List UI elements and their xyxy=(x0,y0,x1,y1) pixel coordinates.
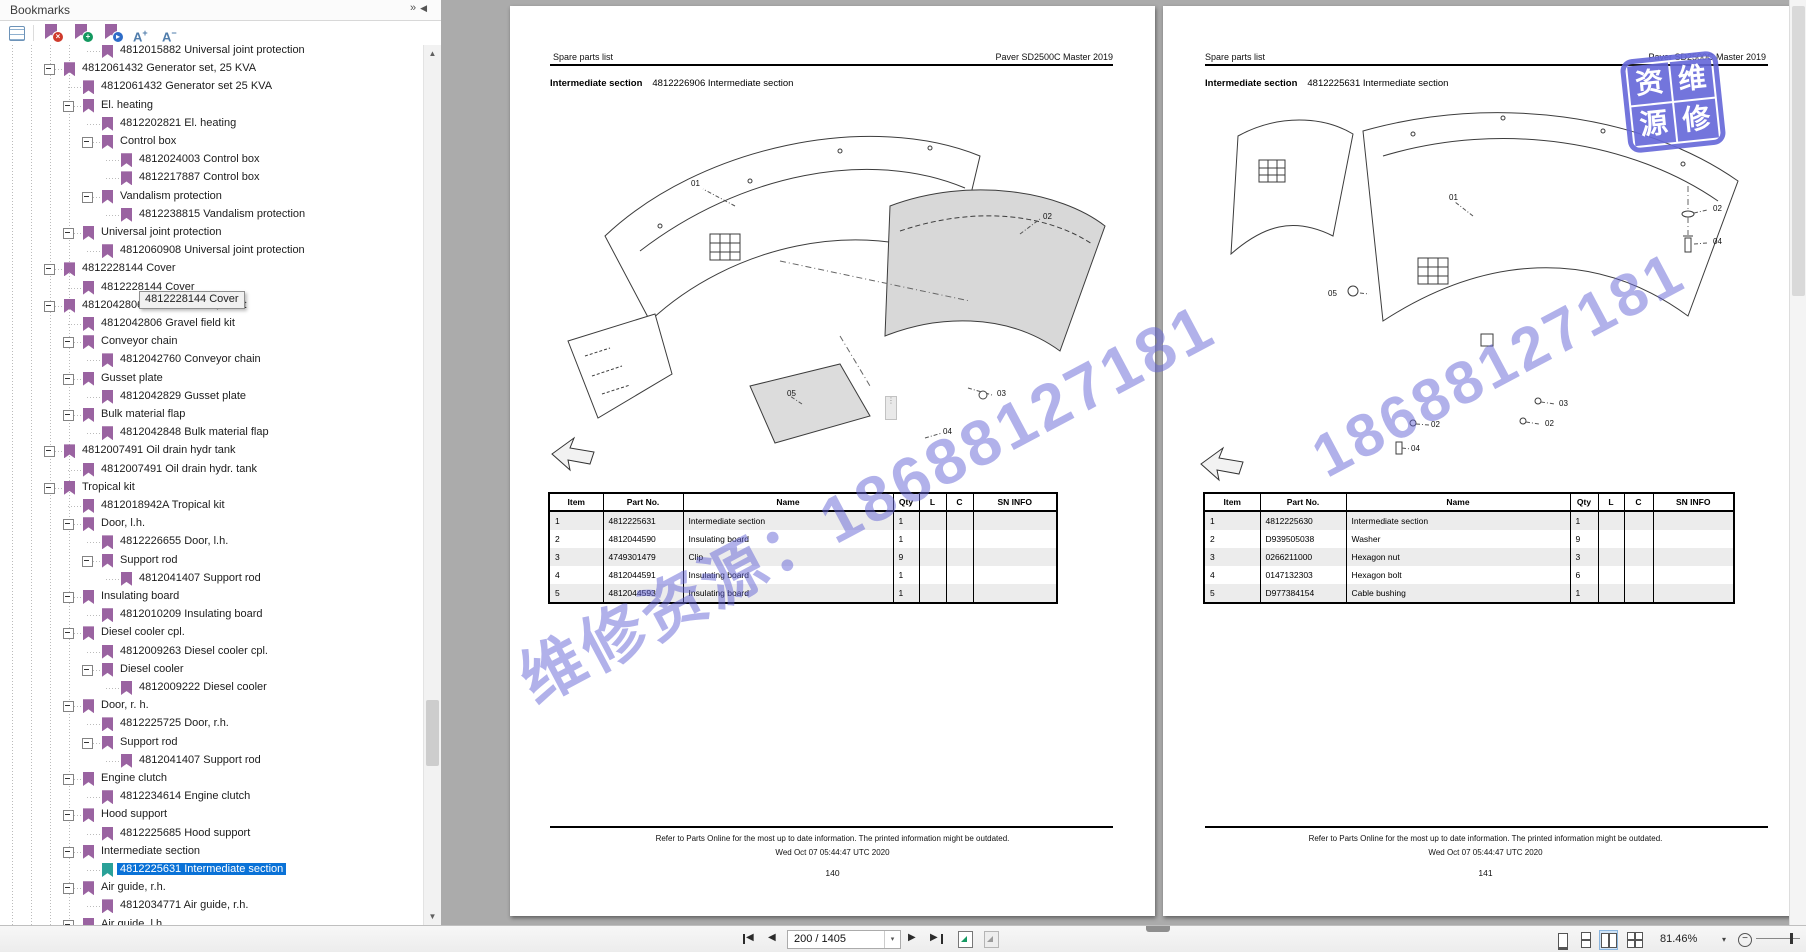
bookmark-item[interactable]: Tropical kit xyxy=(0,479,422,497)
callout-label: 01 xyxy=(691,179,700,188)
continuous-facing-icon[interactable] xyxy=(1625,930,1644,950)
bookmark-icon xyxy=(102,117,113,131)
collapse-expander-icon[interactable] xyxy=(63,847,74,858)
bookmark-item[interactable]: Support rod xyxy=(0,734,422,752)
bookmark-item[interactable]: Intermediate section xyxy=(0,843,422,861)
bookmark-label[interactable]: 4812238815 Vandalism protection xyxy=(136,208,308,220)
collapse-expander-icon[interactable] xyxy=(63,592,74,603)
bookmark-item[interactable]: 4812228144 Cover xyxy=(0,260,422,278)
callout-label: 02 xyxy=(1043,212,1052,221)
bookmark-item[interactable]: 4812202821 El. heating xyxy=(0,115,422,133)
bookmark-icon xyxy=(102,663,113,677)
bookmark-icon xyxy=(102,863,113,877)
bookmark-item[interactable]: 4812009222 Diesel cooler xyxy=(0,679,422,697)
bookmark-icon xyxy=(102,135,113,149)
bookmark-item[interactable]: Insulating board xyxy=(0,588,422,606)
bookmark-label[interactable]: 4812010209 Insulating board xyxy=(117,608,266,620)
col-header: L xyxy=(1598,493,1624,511)
footer-timestamp: Wed Oct 07 05:44:47 UTC 2020 xyxy=(510,848,1155,857)
bookmark-item[interactable]: 4812234614 Engine clutch xyxy=(0,788,422,806)
bookmark-item[interactable]: 4812018942A Tropical kit xyxy=(0,497,422,515)
bookmark-item[interactable]: Air guide, l.h xyxy=(0,916,422,925)
zoom-slider-thumb[interactable] xyxy=(1790,933,1793,944)
table-row: 2D939505038Washer9 xyxy=(1204,530,1734,548)
bookmark-label[interactable]: 4812217887 Control box xyxy=(136,171,262,183)
table-row: 24812044590Insulating board1 xyxy=(549,530,1057,548)
bookmark-label[interactable]: 4812041407 Support rod xyxy=(136,572,264,584)
bookmark-label[interactable]: 4812225631 Intermediate section xyxy=(117,863,286,875)
bookmark-item[interactable]: 4812225685 Hood support xyxy=(0,825,422,843)
tree-connector xyxy=(87,870,100,871)
zoom-slider-track[interactable] xyxy=(1756,938,1800,939)
open-new-window-icon[interactable] xyxy=(984,931,999,948)
bookmark-icon xyxy=(102,645,113,659)
bookmark-label[interactable]: Support rod xyxy=(117,554,180,566)
bookmark-item[interactable]: Door, r. h. xyxy=(0,697,422,715)
collapse-expander-icon[interactable] xyxy=(63,883,74,894)
col-header: Qty xyxy=(1570,493,1598,511)
bookmark-icon xyxy=(83,463,94,477)
tree-connector xyxy=(87,360,100,361)
previous-page-icon[interactable]: ◀ xyxy=(768,932,776,943)
callout-label: 04 xyxy=(943,427,952,436)
bookmark-item[interactable]: Air guide, r.h. xyxy=(0,879,422,897)
tree-connector xyxy=(68,324,81,325)
bookmark-item[interactable]: 4812061432 Generator set 25 KVA xyxy=(0,78,422,96)
collapse-expander-icon[interactable] xyxy=(63,774,74,785)
collapse-expander-icon[interactable] xyxy=(63,228,74,239)
bookmark-item[interactable]: 4812226655 Door, l.h. xyxy=(0,533,422,551)
collapse-expander-icon[interactable] xyxy=(44,264,55,275)
bookmark-item[interactable]: 4812041407 Support rod xyxy=(0,570,422,588)
tree-connector xyxy=(68,470,81,471)
bookmark-label[interactable]: Gusset plate xyxy=(98,372,166,384)
collapse-expander-icon[interactable] xyxy=(44,446,55,457)
bookmark-icon xyxy=(83,335,94,349)
tree-connector xyxy=(87,251,100,252)
bookmark-label[interactable]: 4812009222 Diesel cooler xyxy=(136,681,270,693)
bookmark-item[interactable]: 4812007491 Oil drain hydr tank xyxy=(0,442,422,460)
bookmark-label[interactable]: 4812042848 Bulk material flap xyxy=(117,426,272,438)
bookmark-icon xyxy=(102,717,113,731)
col-header: SN INFO xyxy=(1653,493,1734,511)
bookmark-icon xyxy=(121,681,132,695)
collapse-expander-icon[interactable] xyxy=(82,137,93,148)
tree-connector xyxy=(87,124,100,125)
bookmark-icon xyxy=(83,881,94,895)
tree-connector xyxy=(68,87,81,88)
tree-connector xyxy=(106,761,119,762)
bookmark-item[interactable]: Vandalism protection xyxy=(0,188,422,206)
bookmark-icon xyxy=(102,827,113,841)
bookmark-item[interactable]: 4812034771 Air guide, r.h. xyxy=(0,897,422,915)
bookmark-item[interactable]: 4812042806 Gravel field kit xyxy=(0,315,422,333)
col-header: Item xyxy=(1204,493,1260,511)
bookmark-icon xyxy=(102,608,113,622)
bookmark-label[interactable]: 4812024003 Control box xyxy=(136,153,262,165)
callout-label: 04 xyxy=(1713,237,1722,246)
exploded-view-diagram xyxy=(1183,86,1803,486)
bookmark-icon xyxy=(83,772,94,786)
bookmark-item[interactable]: 4812217887 Control box xyxy=(0,169,422,187)
bookmark-label[interactable]: 4812061432 Generator set 25 KVA xyxy=(98,80,275,92)
callout-label: 03 xyxy=(1559,399,1568,408)
tree-connector xyxy=(106,178,119,179)
bookmark-label[interactable]: Air guide, r.h. xyxy=(98,881,169,893)
bookmark-item[interactable]: 4812009263 Diesel cooler cpl. xyxy=(0,643,422,661)
bookmark-icon xyxy=(102,899,113,913)
bookmark-label[interactable]: Diesel cooler cpl. xyxy=(98,626,188,638)
collapse-expander-icon[interactable] xyxy=(82,665,93,676)
bookmark-item[interactable]: Conveyor chain xyxy=(0,333,422,351)
bookmark-item[interactable]: 4812225631 Intermediate section xyxy=(0,861,422,879)
bookmark-icon xyxy=(83,626,94,640)
zoom-out-icon[interactable]: − xyxy=(1738,933,1752,947)
bookmark-icon xyxy=(83,99,94,113)
bookmark-icon xyxy=(83,317,94,331)
collapse-expander-icon[interactable] xyxy=(63,374,74,385)
collapse-expander-icon[interactable] xyxy=(63,701,74,712)
bookmark-label[interactable]: 4812007491 Oil drain hydr. tank xyxy=(98,463,260,475)
pdf-reader-window: 4812015882 Universal joint protection481… xyxy=(0,0,1806,952)
bookmark-icon xyxy=(102,44,113,58)
col-header: Qty xyxy=(893,493,919,511)
collapse-expander-icon[interactable] xyxy=(44,483,55,494)
callout-label: 02 xyxy=(1431,420,1440,429)
bottom-toolbar: ◀ ◀ 200 / 1405 ▾ ▶ ▶ 81.46% ▾ − xyxy=(0,925,1806,952)
bookmark-item[interactable]: 4812041407 Support rod xyxy=(0,752,422,770)
font-decrease-icon[interactable]: A− xyxy=(162,24,184,42)
tree-connector xyxy=(87,433,100,434)
bookmark-icon xyxy=(83,226,94,240)
panel-splitter-grip[interactable]: ⋮ xyxy=(885,396,897,420)
callout-label: 02 xyxy=(1713,204,1722,213)
next-page-icon[interactable]: ▶ xyxy=(908,932,916,943)
bookmark-icon xyxy=(83,517,94,531)
bookmark-icon xyxy=(102,353,113,367)
col-header: C xyxy=(946,493,973,511)
continuous-page-icon[interactable] xyxy=(1576,930,1595,950)
orientation-arrow-icon xyxy=(552,438,594,470)
page-number: 141 xyxy=(1163,868,1806,878)
bookmark-label[interactable]: 4812061432 Generator set, 25 KVA xyxy=(79,62,259,74)
bookmark-icon xyxy=(83,918,94,925)
col-header: SN INFO xyxy=(973,493,1057,511)
footer-rule xyxy=(1205,826,1768,828)
col-header: Item xyxy=(549,493,603,511)
delete-bookmark-icon[interactable]: × xyxy=(45,24,63,42)
bookmark-item[interactable]: 4812238815 Vandalism protection xyxy=(0,206,422,224)
bookmark-icon xyxy=(83,590,94,604)
bookmark-item[interactable]: Diesel cooler cpl. xyxy=(0,624,422,642)
bookmark-item[interactable]: 4812010209 Insulating board xyxy=(0,606,422,624)
collapse-expander-icon[interactable] xyxy=(82,556,93,567)
bookmark-icon xyxy=(102,535,113,549)
bookmark-label[interactable]: Air guide, l.h xyxy=(98,918,165,925)
callout-label: 03 xyxy=(997,389,1006,398)
bookmark-label[interactable]: 4812042806 Gravel field kit xyxy=(98,317,238,329)
bookmark-label[interactable]: 4812202821 El. heating xyxy=(117,117,239,129)
col-header: C xyxy=(1624,493,1653,511)
bookmark-icon xyxy=(83,281,94,295)
table-row: 5D977384154Cable bushing1 xyxy=(1204,584,1734,603)
bookmark-label[interactable]: El. heating xyxy=(98,99,156,111)
tree-connector xyxy=(106,215,119,216)
bookmark-label[interactable]: 4812042829 Gusset plate xyxy=(117,390,249,402)
locate-bookmark-icon[interactable]: ▸ xyxy=(105,24,123,42)
bookmark-label[interactable]: 4812060908 Universal joint protection xyxy=(117,244,308,256)
page-number-input[interactable]: 200 / 1405 ▾ xyxy=(787,930,901,949)
bookmark-icon xyxy=(83,699,94,713)
table-row: 14812225630Intermediate section1 xyxy=(1204,511,1734,530)
bookmark-icon xyxy=(83,80,94,94)
bookmark-label[interactable]: 4812007491 Oil drain hydr tank xyxy=(79,444,239,456)
tree-connector xyxy=(87,834,100,835)
orientation-arrow-icon xyxy=(1201,448,1243,480)
bookmark-item[interactable]: 4812024003 Control box xyxy=(0,151,422,169)
table-row: 34749301479Clip9 xyxy=(549,548,1057,566)
tree-connector xyxy=(87,652,100,653)
bookmark-label[interactable]: Support rod xyxy=(117,736,180,748)
bookmarks-panel: 4812015882 Universal joint protection481… xyxy=(0,0,441,925)
bookmark-label[interactable]: Bulk material flap xyxy=(98,408,188,420)
tree-connector xyxy=(87,906,100,907)
exploded-view-diagram xyxy=(540,86,1140,486)
bookmark-item[interactable]: Hood support xyxy=(0,806,422,824)
watermark-stamp: 资维 源修 xyxy=(1619,50,1726,154)
page-header-left: Spare parts list xyxy=(553,52,613,62)
pdf-page-140: Spare parts list Paver SD2500C Master 20… xyxy=(510,6,1155,916)
bookmark-label[interactable]: Tropical kit xyxy=(79,481,138,493)
collapse-expander-icon[interactable] xyxy=(63,337,74,348)
toolbar-divider xyxy=(33,25,34,41)
facing-pages-icon[interactable] xyxy=(1599,930,1618,950)
first-page-icon[interactable]: ◀ xyxy=(746,932,754,943)
callout-label: 04 xyxy=(1411,444,1420,453)
bookmark-label[interactable]: Hood support xyxy=(98,808,170,820)
bookmark-icon xyxy=(121,572,132,586)
bookmark-label[interactable]: 4812015882 Universal joint protection xyxy=(117,44,308,56)
first-page-bar xyxy=(743,934,745,944)
bookmark-item[interactable]: 4812007491 Oil drain hydr. tank xyxy=(0,461,422,479)
tree-connector xyxy=(87,397,100,398)
parts-table: Item Part No. Name Qty L C SN INFO 14812… xyxy=(1203,492,1735,604)
page-number: 140 xyxy=(510,868,1155,878)
font-increase-icon[interactable]: A+ xyxy=(133,24,155,42)
collapse-expander-icon[interactable] xyxy=(63,519,74,530)
bookmark-item[interactable]: 4812042760 Conveyor chain xyxy=(0,351,422,369)
tree-connector xyxy=(87,724,100,725)
bookmark-icon xyxy=(64,481,75,495)
scrollbar-thumb[interactable] xyxy=(426,700,439,766)
col-header: Part No. xyxy=(603,493,683,511)
bookmark-item[interactable]: Bulk material flap xyxy=(0,406,422,424)
parts-table: Item Part No. Name Qty L C SN INFO 14812… xyxy=(548,492,1058,604)
table-row: 54812044593Insulating board1 xyxy=(549,584,1057,603)
page-dropdown-icon[interactable]: ▾ xyxy=(884,931,900,948)
bookmark-label[interactable]: 4812018942A Tropical kit xyxy=(98,499,228,511)
col-header: Part No. xyxy=(1260,493,1346,511)
scroll-down-icon[interactable]: ▼ xyxy=(424,908,441,925)
bookmark-item[interactable]: Support rod xyxy=(0,552,422,570)
last-page-icon[interactable]: ▶ xyxy=(930,932,938,943)
bookmark-icon xyxy=(64,444,75,458)
collapse-expander-icon[interactable] xyxy=(82,192,93,203)
bookmark-icon xyxy=(83,845,94,859)
bookmark-label[interactable]: Control box xyxy=(117,135,179,147)
bookmark-icon xyxy=(121,171,132,185)
col-header: Name xyxy=(1346,493,1570,511)
tree-connector xyxy=(106,579,119,580)
bookmark-icon xyxy=(121,153,132,167)
bookmark-icon xyxy=(102,390,113,404)
bookmark-item[interactable]: Door, l.h. xyxy=(0,515,422,533)
bookmark-label[interactable]: 4812034771 Air guide, r.h. xyxy=(117,899,251,911)
tree-connector xyxy=(106,160,119,161)
bookmarks-toolbar: × + ▸ A+ A− xyxy=(0,21,422,45)
bookmark-label[interactable]: 4812228144 Cover xyxy=(79,262,179,274)
col-header: Name xyxy=(683,493,893,511)
bookmark-item[interactable]: 4812060908 Universal joint protection xyxy=(0,242,422,260)
page-header-right: Paver SD2500C Master 2019 xyxy=(995,52,1113,62)
bookmark-label[interactable]: Door, l.h. xyxy=(98,517,148,529)
bookmark-label[interactable]: 4812042760 Conveyor chain xyxy=(117,353,264,365)
callout-label: 02 xyxy=(1545,419,1554,428)
single-page-icon[interactable] xyxy=(1553,930,1572,950)
bookmark-icon xyxy=(83,808,94,822)
bookmarks-scrollbar[interactable]: ▲ ▼ xyxy=(423,45,441,925)
footer-timestamp: Wed Oct 07 05:44:47 UTC 2020 xyxy=(1163,848,1806,857)
bookmark-icon xyxy=(102,244,113,258)
table-row: 44812044591Insulating board1 xyxy=(549,566,1057,584)
tree-connector xyxy=(87,51,100,52)
bookmark-label[interactable]: 4812009263 Diesel cooler cpl. xyxy=(117,645,271,657)
options-icon[interactable] xyxy=(8,24,26,42)
bookmark-label[interactable]: 4812041407 Support rod xyxy=(136,754,264,766)
tree-connector xyxy=(87,797,100,798)
bookmark-icon xyxy=(102,190,113,204)
footer-note: Refer to Parts Online for the most up to… xyxy=(510,834,1155,843)
bookmark-item[interactable]: 4812042848 Bulk material flap xyxy=(0,424,422,442)
bookmark-label[interactable]: 4812234614 Engine clutch xyxy=(117,790,253,802)
callout-label: 01 xyxy=(1449,193,1458,202)
bookmark-label[interactable]: Door, r. h. xyxy=(98,699,152,711)
bookmark-item[interactable]: 4812225725 Door, r.h. xyxy=(0,715,422,733)
add-bookmark-icon[interactable]: + xyxy=(75,24,93,42)
bookmark-icon xyxy=(102,554,113,568)
bookmark-label[interactable]: Conveyor chain xyxy=(98,335,180,347)
callout-label: 05 xyxy=(1328,289,1337,298)
callout-label: 05 xyxy=(787,389,796,398)
scroll-up-icon[interactable]: ▲ xyxy=(424,45,441,62)
header-rule xyxy=(550,64,1113,66)
collapse-expander-icon[interactable] xyxy=(63,810,74,821)
bookmark-item[interactable]: 4812061432 Generator set, 25 KVA xyxy=(0,60,422,78)
collapse-expander-icon[interactable] xyxy=(44,64,55,75)
bookmark-label[interactable]: Diesel cooler xyxy=(117,663,187,675)
bookmark-label[interactable]: 4812226655 Door, l.h. xyxy=(117,535,231,547)
bookmark-icon xyxy=(102,426,113,440)
bookmark-item[interactable]: Universal joint protection xyxy=(0,224,422,242)
tree-connector xyxy=(87,542,100,543)
bookmark-label[interactable]: Universal joint protection xyxy=(98,226,224,238)
open-new-tab-icon[interactable] xyxy=(958,931,973,948)
bookmark-label[interactable]: Engine clutch xyxy=(98,772,170,784)
bookmark-item[interactable]: Gusset plate xyxy=(0,370,422,388)
collapse-expander-icon[interactable] xyxy=(63,410,74,421)
bookmark-icon xyxy=(83,499,94,513)
bookmark-icon xyxy=(121,754,132,768)
bookmark-icon xyxy=(121,208,132,222)
bookmark-label[interactable]: 4812225725 Door, r.h. xyxy=(117,717,232,729)
bookmark-tooltip: 4812228144 Cover xyxy=(139,291,245,309)
table-row: 40147132303Hexagon bolt6 xyxy=(1204,566,1734,584)
bookmarks-tree: 4812015882 Universal joint protection481… xyxy=(0,0,422,925)
collapse-expander-icon[interactable] xyxy=(63,628,74,639)
scrollbar-thumb[interactable] xyxy=(1792,6,1805,296)
bookmark-label[interactable]: Intermediate section xyxy=(98,845,203,857)
toolbar-handle[interactable] xyxy=(1146,926,1170,932)
document-scrollbar[interactable] xyxy=(1789,0,1806,925)
bookmark-icon xyxy=(102,790,113,804)
bookmark-label[interactable]: Insulating board xyxy=(98,590,182,602)
tree-connector xyxy=(68,506,81,507)
page-header-left: Spare parts list xyxy=(1205,52,1265,62)
bookmark-icon xyxy=(102,736,113,750)
tree-connector xyxy=(106,688,119,689)
zoom-dropdown-icon[interactable]: ▾ xyxy=(1722,935,1726,944)
bookmark-icon xyxy=(64,262,75,276)
bookmark-icon xyxy=(64,299,75,313)
collapse-expander-icon[interactable] xyxy=(44,301,55,312)
col-header: L xyxy=(919,493,946,511)
collapse-expander-icon[interactable] xyxy=(63,101,74,112)
bookmark-icon xyxy=(83,372,94,386)
bookmark-item[interactable]: Engine clutch xyxy=(0,770,422,788)
bookmark-icon xyxy=(83,408,94,422)
bookmark-item[interactable]: Control box xyxy=(0,133,422,151)
footer-note: Refer to Parts Online for the most up to… xyxy=(1163,834,1806,843)
last-page-bar xyxy=(941,934,943,944)
bookmark-item[interactable]: Diesel cooler xyxy=(0,661,422,679)
table-row: 30266211000Hexagon nut3 xyxy=(1204,548,1734,566)
tree-connector xyxy=(68,288,81,289)
document-canvas: ⋮ Spare parts list Paver SD2500C Master … xyxy=(441,0,1806,925)
bookmark-item[interactable]: 4812042829 Gusset plate xyxy=(0,388,422,406)
bookmark-label[interactable]: 4812225685 Hood support xyxy=(117,827,253,839)
tree-connector xyxy=(87,615,100,616)
bookmark-icon xyxy=(64,62,75,76)
bookmark-label[interactable]: Vandalism protection xyxy=(117,190,225,202)
table-row: 14812225631Intermediate section1 xyxy=(549,511,1057,530)
footer-rule xyxy=(550,826,1113,828)
bookmark-item[interactable]: El. heating xyxy=(0,97,422,115)
collapse-expander-icon[interactable] xyxy=(82,738,93,749)
zoom-level: 81.46% xyxy=(1660,933,1697,945)
